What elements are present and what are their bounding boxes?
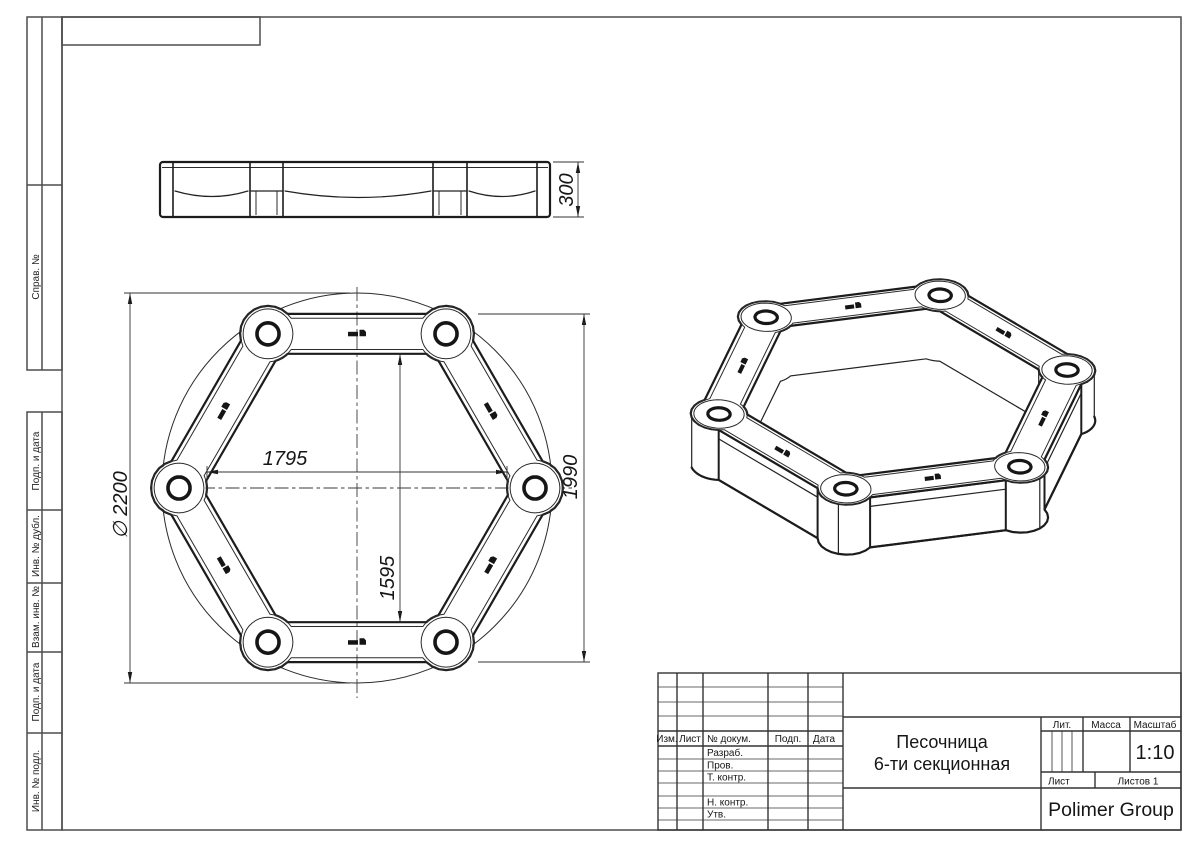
tb-company: Polimer Group [1048,799,1174,821]
corner-pod [420,616,473,669]
margin-label-vzam-inv-no: Взам. инв. № [31,586,42,648]
title-block: Изм. Лист № докум. Подп. Дата Разраб. Пр… [656,673,1181,830]
dimension-height: 300 [553,162,584,217]
tb-col-list: Лист [679,734,701,745]
corner-pod [153,462,206,515]
tb-listov-label: Листов 1 [1118,777,1159,788]
tb-col-no-dokum: № докум. [707,734,751,745]
drawing-sheet: Справ. № Подп. и дата Инв. № дубл. Взам.… [0,0,1200,849]
side-view: 300 [160,162,584,217]
dim-overall-diameter-label: ∅ 2200 [110,471,132,538]
margin-labels: Справ. № Подп. и дата Инв. № дубл. Взам.… [30,254,42,812]
sheet-frame [27,17,1181,830]
dim-inner-width-label: 1795 [263,448,308,470]
top-left-stamp-box [62,17,260,45]
tb-row-razrab: Разраб. [707,747,743,759]
corner-pod [242,616,295,669]
tb-scale-value: 1:10 [1136,742,1175,764]
corner-pod [509,462,562,515]
margin-label-sprav-no: Справ. № [31,254,42,300]
margin-group-1 [27,17,62,370]
tb-row-prov: Пров. [707,761,733,772]
margin-label-podp-i-data-1: Подп. и дата [31,431,42,490]
tb-col-izm: Изм. [656,734,677,745]
brand-logo [216,401,231,420]
tb-doc-name-line2: 6-ти секционная [874,754,1010,774]
tb-massa-label: Масса [1091,720,1121,731]
corner-pod [242,307,295,360]
corner-pod [420,307,473,360]
brand-logo [217,555,232,574]
tb-list-label: Лист [1048,777,1070,788]
inner-frame [62,17,1181,830]
tb-lit-label: Лит. [1053,720,1071,731]
dim-height-label: 300 [556,173,578,206]
tb-doc-name-line1: Песочница [896,732,988,752]
tb-row-n-kontr: Н. контр. [707,798,748,809]
brand-logo [483,555,498,574]
margin-label-podp-i-data-2: Подп. и дата [31,662,42,721]
tb-row-utv: Утв. [707,810,726,821]
tb-masshtab-label: Масштаб [1134,719,1177,731]
tb-col-data: Дата [813,734,836,745]
margin-label-inv-no-dubl: Инв. № дубл. [30,515,42,577]
tb-row-t-kontr: Т. контр. [707,773,746,784]
side-view-outline [160,162,550,217]
dim-inner-across-flats-label: 1595 [377,555,399,600]
dim-across-flats-label: 1990 [560,455,582,500]
tb-col-podp: Подп. [775,734,802,745]
isometric-view [691,279,1096,554]
margin-label-inv-no-podl: Инв. № подл. [31,750,42,812]
brand-logo [484,401,499,420]
